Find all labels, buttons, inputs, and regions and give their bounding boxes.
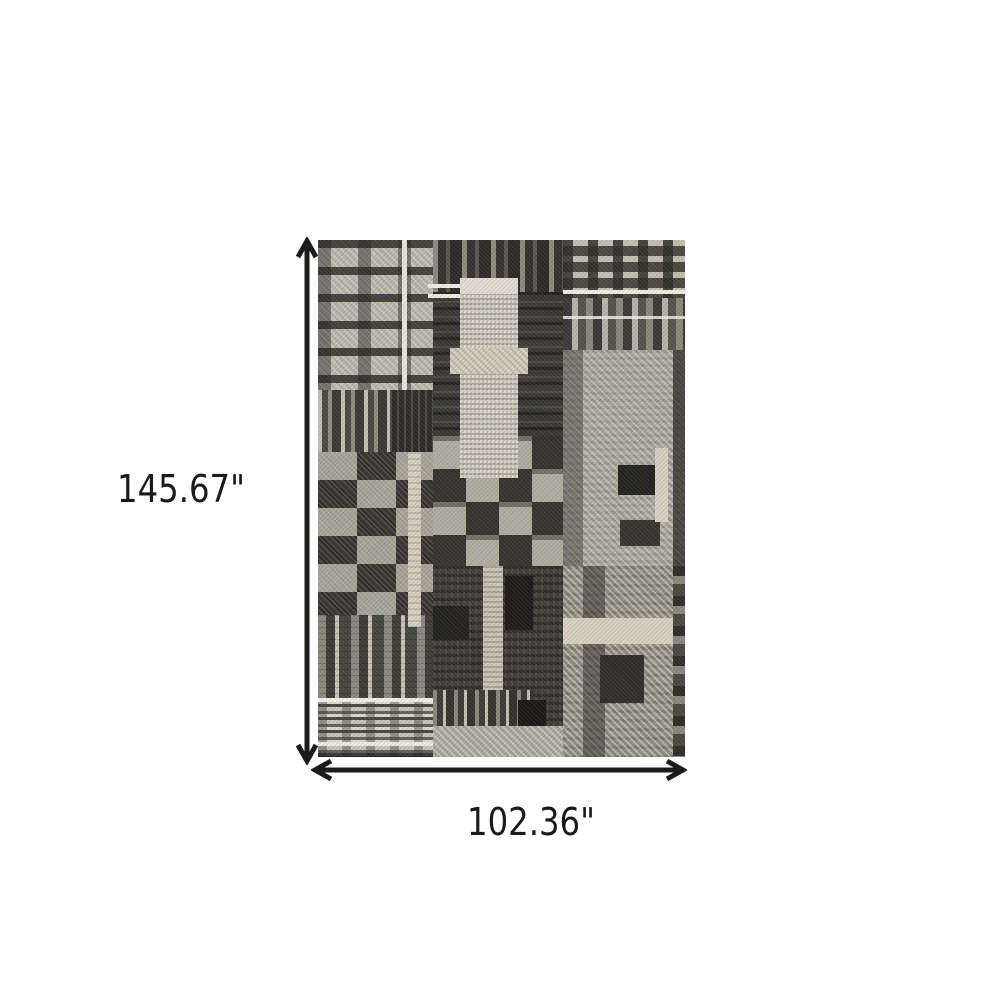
height-dimension-arrow <box>294 237 320 765</box>
rug-image <box>318 240 685 757</box>
width-dimension-label: 102.36" <box>459 800 604 844</box>
width-dimension-arrow <box>311 757 687 783</box>
rug-texture-overlay <box>318 240 685 757</box>
product-dimension-diagram: 145.67" 102.36" <box>0 0 1000 1000</box>
height-dimension-label: 145.67" <box>109 467 254 511</box>
